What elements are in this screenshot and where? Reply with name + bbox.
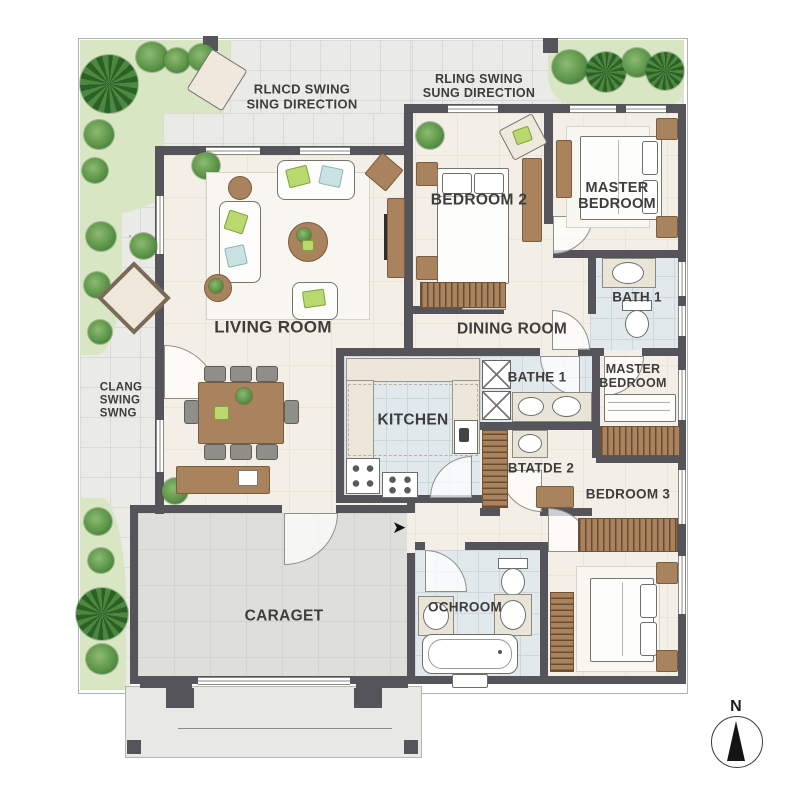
window xyxy=(448,105,498,113)
window xyxy=(678,306,686,336)
window xyxy=(300,147,350,155)
room-label-master-top: MASTER BEDROOM xyxy=(578,180,656,212)
note-left: CLANG SWING SWNG xyxy=(100,382,142,421)
room-label-line: MASTER xyxy=(578,180,656,196)
kitchen-counter xyxy=(346,358,480,382)
window xyxy=(156,420,164,472)
bathtub-inner xyxy=(428,639,512,669)
tree-icon xyxy=(80,55,138,113)
tree-icon xyxy=(84,508,112,535)
wardrobe xyxy=(420,282,506,308)
room-label-living: LIVING ROOM xyxy=(214,317,332,336)
sink xyxy=(552,396,581,417)
dining-chair xyxy=(230,444,252,460)
note-line: SING DIRECTION xyxy=(246,97,357,112)
room-label-master-right: MASTER BEDROOM xyxy=(599,362,666,390)
wardrobe xyxy=(578,518,678,552)
dining-chair xyxy=(256,366,278,382)
tree-icon xyxy=(552,50,588,84)
sink xyxy=(518,397,544,416)
note-top-left: RLNCD SWING SING DIRECTION xyxy=(246,82,357,111)
garage-step xyxy=(354,688,382,708)
tree-icon xyxy=(76,588,128,640)
tree-icon xyxy=(84,120,114,149)
room-label-line: BEDROOM xyxy=(599,376,666,390)
dresser xyxy=(556,140,572,198)
room-label-kitchen: KITCHEN xyxy=(378,411,449,428)
plant-icon xyxy=(209,279,223,293)
wall xyxy=(480,508,500,516)
driveway-post xyxy=(127,740,141,754)
wardrobe xyxy=(600,426,680,456)
window xyxy=(678,262,686,296)
room-label-garage: CARAGET xyxy=(245,607,324,624)
toilet xyxy=(625,310,649,338)
tree-icon xyxy=(164,48,190,73)
wall xyxy=(480,422,600,430)
bench-line xyxy=(608,410,670,411)
driveway-post xyxy=(404,740,418,754)
room-label-ochroom: OCHROOM xyxy=(428,599,502,614)
sink xyxy=(500,600,526,630)
dining-chair xyxy=(184,400,199,424)
window xyxy=(678,556,686,614)
oven xyxy=(382,472,418,498)
note-line: RLNCD SWING xyxy=(246,82,357,97)
pillow xyxy=(642,141,658,175)
note-line: SUNG DIRECTION xyxy=(423,86,536,100)
room-label-bath1: BATH 1 xyxy=(612,289,662,304)
duvet-line xyxy=(622,582,623,656)
tree-icon xyxy=(86,644,118,674)
dining-chair xyxy=(256,444,278,460)
wall xyxy=(415,542,425,550)
step xyxy=(452,674,488,688)
dining-chair xyxy=(204,366,226,382)
tv-console xyxy=(387,198,405,278)
wall xyxy=(336,348,344,503)
tree-icon xyxy=(586,52,626,92)
wall xyxy=(588,258,596,314)
faucet xyxy=(459,428,469,442)
desk xyxy=(536,486,574,508)
sink xyxy=(612,262,644,284)
room-label-bedroom3: BEDROOM 3 xyxy=(586,486,670,501)
bench-line xyxy=(608,402,670,403)
patio-patch xyxy=(163,113,404,147)
nightstand xyxy=(416,162,438,186)
room-label-line: MASTER xyxy=(599,362,666,376)
wall xyxy=(407,553,415,684)
entry-arrow-icon: ➤ xyxy=(392,518,406,538)
note-line: SWNG xyxy=(100,407,142,420)
wall xyxy=(155,146,413,155)
window xyxy=(570,105,616,113)
shower-unit xyxy=(482,391,511,420)
tree-icon xyxy=(136,42,168,72)
garage-step xyxy=(166,688,194,708)
room-label-btatde2: BTATDE 2 xyxy=(508,460,574,475)
wall xyxy=(336,348,540,356)
cushion xyxy=(224,244,248,268)
wardrobe xyxy=(550,592,574,672)
note-line: RLING SWING xyxy=(423,72,536,86)
wall xyxy=(540,548,548,676)
bed-bench xyxy=(604,394,676,422)
tree-icon xyxy=(86,222,116,251)
tv xyxy=(384,214,387,260)
floor-plan: ➤ xyxy=(0,0,800,800)
sink xyxy=(518,434,542,453)
nightstand xyxy=(656,650,678,672)
stove xyxy=(346,458,380,494)
toilet xyxy=(501,568,525,596)
room-label-dining: DINING ROOM xyxy=(457,320,567,337)
wall xyxy=(336,505,415,513)
dining-chair xyxy=(230,366,252,382)
wall xyxy=(544,104,553,224)
compass-needle-icon xyxy=(727,721,745,761)
room-label-bedroom2: BEDROOM 2 xyxy=(431,191,528,208)
garage-step xyxy=(140,676,192,688)
nightstand xyxy=(656,562,678,584)
garage-step xyxy=(356,676,408,688)
wall xyxy=(596,455,686,463)
tree-icon xyxy=(646,52,684,90)
wardrobe xyxy=(482,430,508,508)
tree-icon xyxy=(88,548,114,573)
pillow xyxy=(640,584,657,618)
note-line: CLANG xyxy=(100,382,142,395)
wall xyxy=(130,505,138,684)
nightstand xyxy=(416,256,438,280)
window xyxy=(678,470,686,524)
pillow xyxy=(640,622,657,656)
cushion xyxy=(302,289,326,309)
room-label-line: BEDROOM xyxy=(578,196,656,212)
wall xyxy=(642,348,686,356)
fence-post xyxy=(543,38,558,53)
dining-chair xyxy=(284,400,299,424)
window xyxy=(156,196,164,254)
note-line: SWING xyxy=(100,395,142,408)
tree-icon xyxy=(130,233,157,259)
room-label-bathe1: BATHE 1 xyxy=(508,369,567,384)
wall xyxy=(553,250,686,258)
nightstand xyxy=(656,118,678,140)
nightstand xyxy=(656,216,678,238)
table-decor xyxy=(214,406,229,420)
tree-icon xyxy=(82,158,108,183)
dining-chair xyxy=(204,444,226,460)
desk-item xyxy=(238,470,258,486)
bathtub-drain xyxy=(498,650,502,654)
driveway-line xyxy=(178,728,392,729)
plant-icon xyxy=(236,388,252,404)
compass-north-label: N xyxy=(730,698,742,716)
side-table xyxy=(228,176,252,200)
plant-icon xyxy=(416,122,444,149)
wall xyxy=(465,542,548,550)
tree-icon xyxy=(88,320,112,344)
note-top-right: RLING SWING SUNG DIRECTION xyxy=(423,72,536,100)
garage-door xyxy=(198,677,350,685)
window xyxy=(626,105,666,113)
window xyxy=(678,370,686,420)
table-decor xyxy=(302,240,314,251)
wall xyxy=(130,505,282,513)
garage-floor xyxy=(138,513,407,676)
